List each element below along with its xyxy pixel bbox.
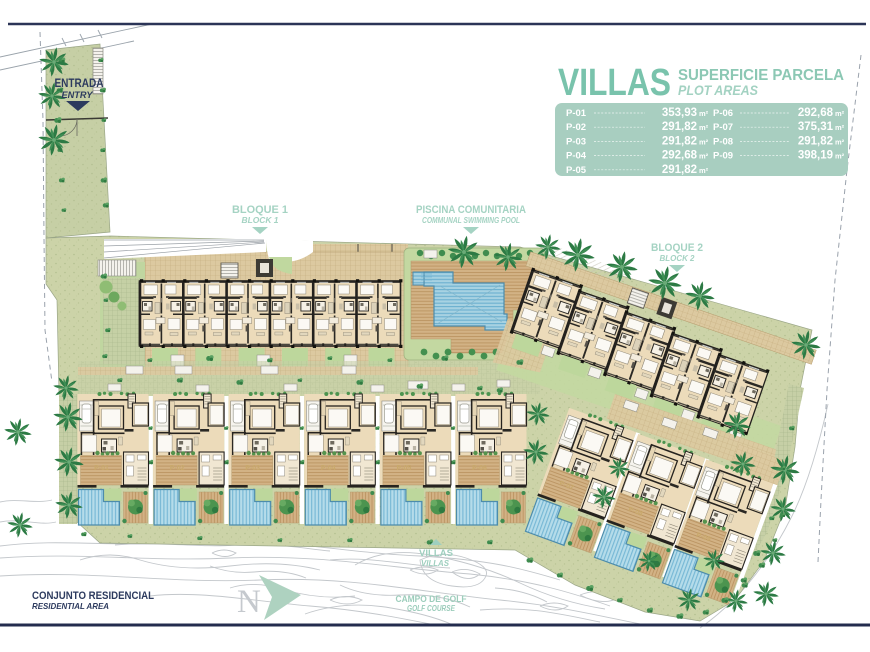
svg-text:375,31: 375,31 [798,121,834,133]
svg-text:m²: m² [835,109,845,118]
svg-text:P-08: P-08 [713,136,733,147]
svg-text:m²: m² [835,123,845,132]
svg-text:m²: m² [699,123,709,132]
svg-text:P-05: P-05 [566,165,587,176]
svg-text:P-09: P-09 [713,151,733,162]
svg-text:m²: m² [699,166,709,175]
svg-text:COMMUNAL SWIMMING POOL: COMMUNAL SWIMMING POOL [422,215,520,225]
svg-text:P-01: P-01 [94,465,109,472]
svg-text:291,82: 291,82 [662,164,697,176]
svg-text:m²: m² [835,152,845,161]
svg-text:P-03: P-03 [566,136,586,147]
svg-text:P-06: P-06 [472,465,487,472]
svg-text:BLOCK 1: BLOCK 1 [242,215,279,225]
svg-text:292,68: 292,68 [798,107,834,119]
svg-text:GOLF COURSE: GOLF COURSE [407,604,456,613]
svg-text:P-05: P-05 [397,465,412,472]
svg-text:m²: m² [835,137,845,146]
svg-text:P-06: P-06 [713,108,733,119]
svg-text:N: N [237,584,261,620]
svg-text:P-02: P-02 [170,465,185,472]
svg-text:m²: m² [699,137,709,146]
svg-text:P-07: P-07 [713,122,733,133]
svg-text:m²: m² [699,152,709,161]
svg-text:VILLAS: VILLAS [421,559,450,568]
svg-text:P-02: P-02 [566,122,586,133]
svg-text:291,82: 291,82 [798,135,833,147]
svg-text:P-04: P-04 [321,465,336,472]
svg-text:P-03: P-03 [245,465,260,472]
svg-text:m²: m² [699,109,709,118]
svg-text:BLOCK 2: BLOCK 2 [660,253,695,263]
svg-text:P-01: P-01 [566,108,587,119]
svg-text:353,93: 353,93 [662,107,697,119]
svg-text:398,19: 398,19 [798,150,833,162]
svg-text:RESIDENTIAL AREA: RESIDENTIAL AREA [32,601,109,611]
svg-text:292,68: 292,68 [662,150,698,162]
svg-text:VILLAS: VILLAS [558,62,671,104]
svg-text:291,82: 291,82 [662,121,697,133]
svg-text:ENTRADA: ENTRADA [55,78,104,90]
svg-text:PLOT AREAS: PLOT AREAS [678,82,759,98]
svg-text:P-04: P-04 [566,151,587,162]
svg-text:ENTRY: ENTRY [62,90,95,101]
svg-text:291,82: 291,82 [662,135,697,147]
svg-text:VILLAS: VILLAS [419,548,453,558]
